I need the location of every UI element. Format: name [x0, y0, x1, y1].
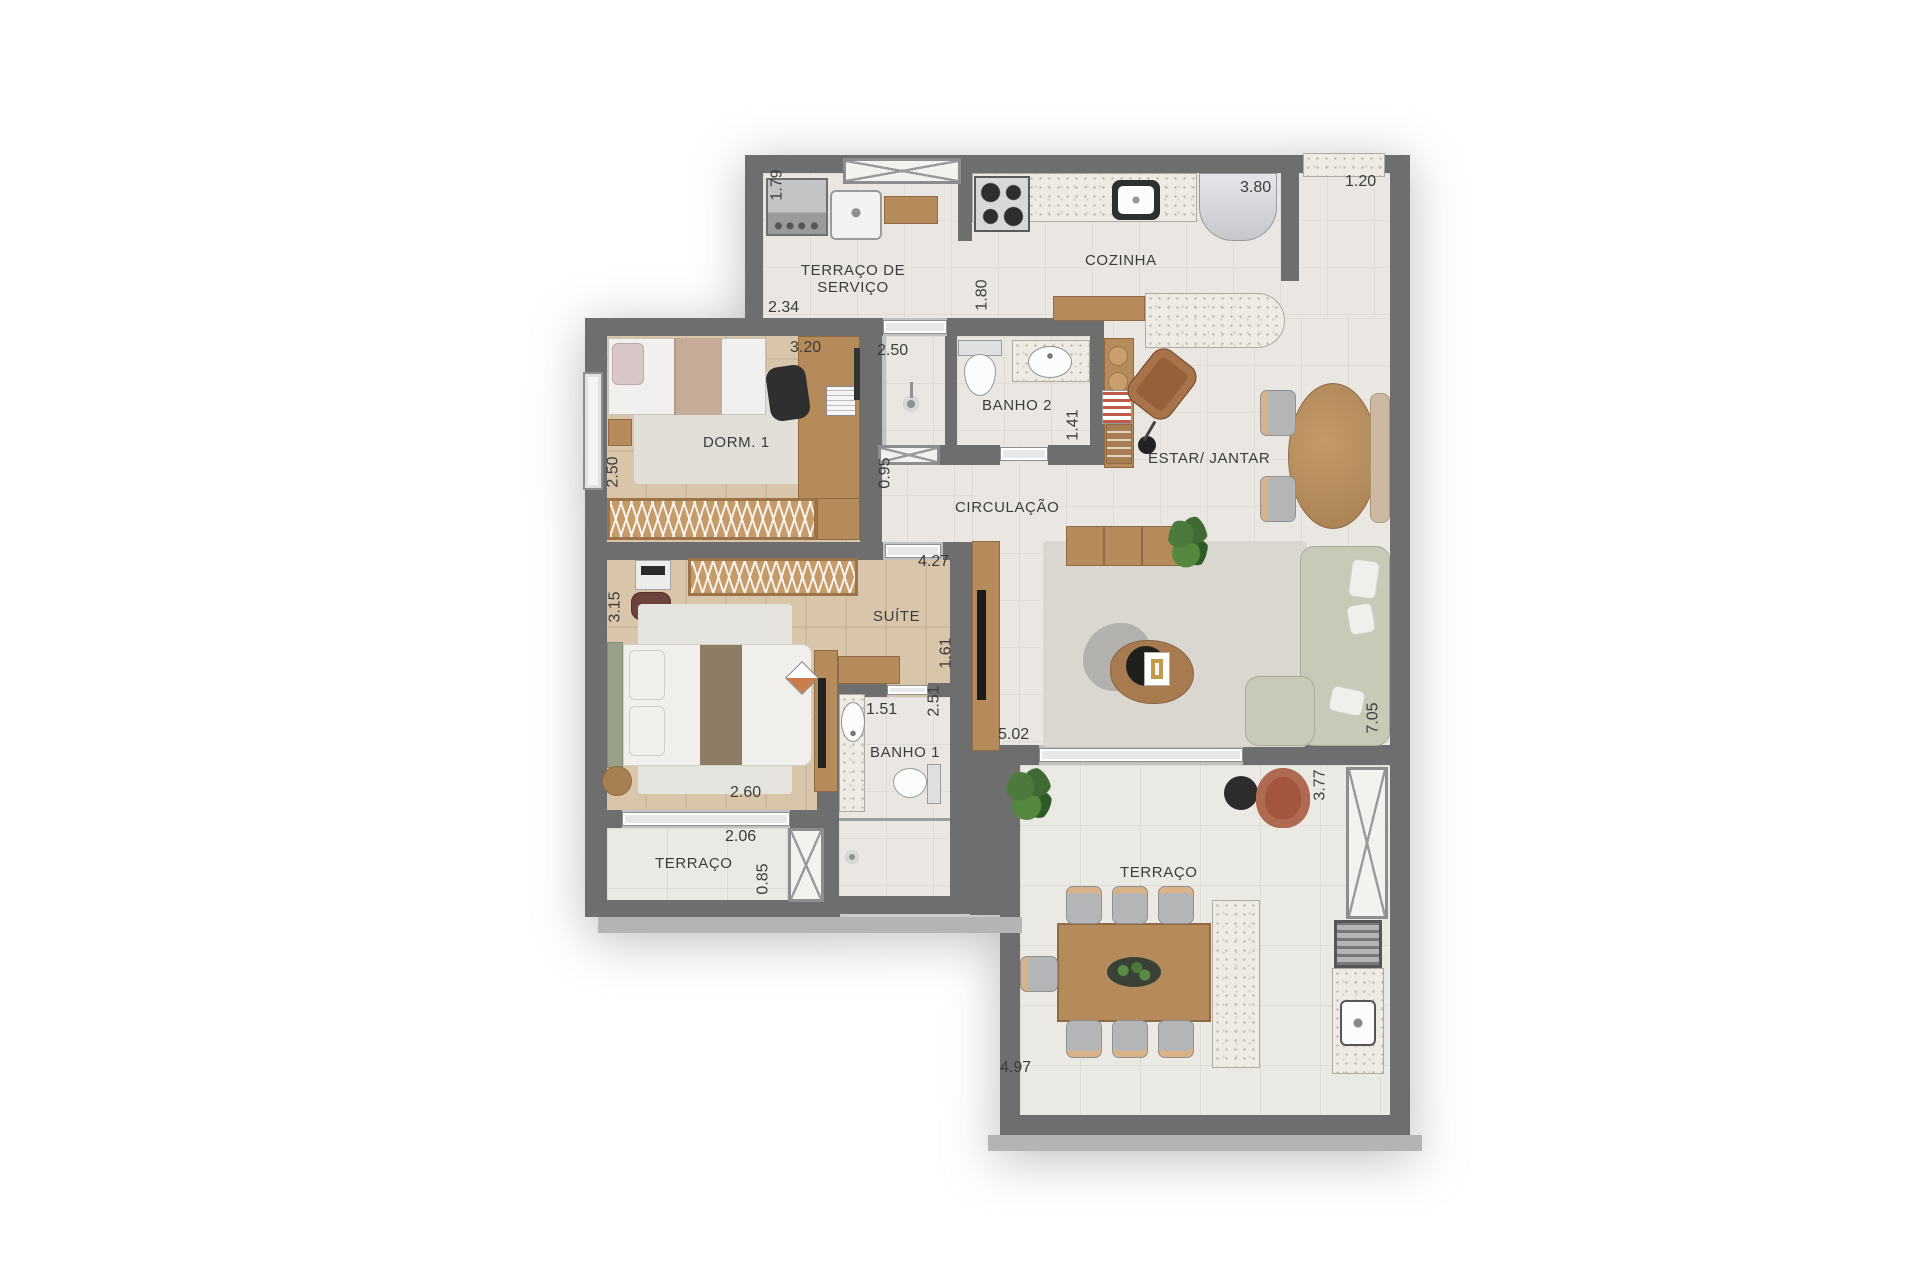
bed-runner	[700, 645, 742, 765]
cooktop-icon	[974, 176, 1030, 232]
headboard	[607, 642, 623, 768]
desk-chair-icon	[764, 363, 811, 422]
terrace-counter	[1212, 900, 1260, 1068]
dim-1-61: 1.61	[938, 637, 956, 668]
wall	[1281, 155, 1299, 281]
dining-chair-icon	[1158, 1020, 1194, 1058]
dining-chair-icon	[1066, 886, 1102, 924]
stool-icon	[1108, 372, 1128, 392]
pillow	[1347, 558, 1380, 600]
kitchen-island-wood	[1053, 296, 1145, 321]
door-sill	[1000, 447, 1048, 461]
dining-chair-icon	[1066, 1020, 1102, 1058]
room-label-circulacao: CIRCULAÇÃO	[955, 499, 1059, 516]
sideboard	[1066, 526, 1180, 566]
door-sill	[887, 685, 928, 695]
side-table	[602, 766, 632, 796]
kitchen-island	[1145, 293, 1285, 348]
tv-icon	[977, 590, 986, 700]
duct-shaft	[788, 828, 824, 902]
dim-0-95: 0.95	[877, 457, 895, 488]
sink-icon	[1028, 346, 1072, 378]
wall	[745, 155, 1303, 173]
door-sill	[883, 320, 947, 334]
plant-icon	[1006, 766, 1052, 824]
closet-rack	[688, 558, 858, 596]
dining-chair-icon	[1020, 956, 1058, 992]
monitor-icon	[854, 348, 860, 400]
pillow	[629, 706, 665, 756]
wall	[860, 336, 882, 542]
dim-3-20: 3.20	[790, 339, 821, 357]
room-label-terraco-servico: TERRAÇO DE SERVIÇO	[797, 262, 909, 296]
side-table-icon	[1224, 776, 1258, 810]
dim-1-51: 1.51	[866, 701, 897, 719]
dining-bench	[1370, 393, 1390, 523]
service-window-louver	[843, 158, 961, 184]
dim-1-41: 1.41	[1065, 409, 1083, 440]
dim-2-50-dorm: 2.50	[605, 456, 623, 487]
wall	[585, 810, 622, 828]
terrace-door-sill	[622, 812, 790, 826]
wall	[1390, 765, 1410, 1135]
wall	[585, 318, 883, 336]
dining-chair-icon	[1158, 886, 1194, 924]
pillow	[629, 650, 665, 700]
shower-glass	[839, 818, 950, 821]
window	[583, 372, 603, 490]
dim-1-80: 1.80	[974, 279, 992, 310]
room-label-cozinha: COZINHA	[1085, 252, 1157, 269]
service-counter	[884, 196, 938, 224]
wall	[585, 900, 840, 917]
wall	[860, 445, 878, 465]
dim-2-34: 2.34	[768, 299, 799, 317]
book	[1144, 652, 1170, 686]
wall	[1048, 445, 1104, 465]
wall	[817, 896, 972, 914]
dining-chair-icon	[1112, 1020, 1148, 1058]
blanket	[674, 338, 722, 415]
dim-2-60: 2.60	[730, 784, 761, 802]
dim-1-20: 1.20	[1345, 173, 1376, 191]
duct-shaft	[1346, 767, 1388, 919]
dim-2-51: 2.51	[926, 685, 944, 716]
dresser	[635, 560, 671, 590]
tv-icon	[818, 678, 826, 768]
tv-icon	[641, 566, 665, 575]
wall	[1390, 155, 1410, 767]
floor-plan: TERRAÇO DE SERVIÇO COZINHA DORM. 1 BANHO…	[0, 0, 1920, 1280]
shower-head-icon	[903, 396, 919, 412]
dim-7-05: 7.05	[1365, 702, 1383, 733]
sliding-door-sill	[1039, 748, 1243, 762]
room-label-suite: SUÍTE	[873, 608, 920, 625]
balcony-slab-edge	[988, 1135, 1422, 1151]
grill-icon	[1334, 920, 1382, 968]
nightstand	[608, 419, 632, 446]
room-label-terraco-esq: TERRAÇO	[655, 855, 733, 872]
dining-chair-icon	[1260, 390, 1296, 436]
dining-table-icon	[1288, 383, 1378, 529]
dining-chair-icon	[1112, 886, 1148, 924]
laundry-sink-icon	[830, 190, 882, 240]
wall	[945, 336, 957, 445]
dim-5-02: 5.02	[998, 726, 1029, 744]
stool-icon	[1108, 346, 1128, 366]
laptop-icon	[826, 386, 856, 416]
dim-3-15: 3.15	[607, 591, 625, 622]
sofa-chaise	[1245, 676, 1315, 746]
room-label-dorm1: DORM. 1	[703, 434, 770, 451]
dim-1-79: 1.79	[769, 169, 787, 200]
wall	[950, 542, 972, 914]
cart	[1106, 424, 1132, 464]
pillow	[612, 343, 644, 385]
room-label-banho1: BANHO 1	[870, 744, 940, 761]
balcony-slab-edge	[598, 917, 1022, 933]
dining-chair-icon	[1260, 476, 1296, 522]
toilet-tank	[927, 764, 941, 804]
dim-0-85: 0.85	[755, 863, 773, 894]
desk	[798, 336, 860, 502]
wall	[1000, 1115, 1410, 1135]
room-label-terraco-fundo: TERRAÇO	[1120, 864, 1198, 881]
dim-3-77: 3.77	[1312, 769, 1330, 800]
dim-4-27: 4.27	[918, 553, 949, 571]
wall	[1000, 765, 1020, 1135]
shower-arm	[910, 382, 913, 398]
pillow	[1346, 602, 1377, 636]
closet-shelf	[817, 498, 860, 540]
room-label-banho2: BANHO 2	[982, 397, 1052, 414]
sink-icon	[841, 702, 865, 742]
dim-4-97: 4.97	[1000, 1059, 1031, 1077]
kitchen-sink-basin	[1118, 186, 1154, 214]
terrace-sink-icon	[1340, 1000, 1376, 1046]
plant-icon	[1168, 514, 1208, 572]
armchair-icon	[1256, 768, 1310, 828]
dim-2-06: 2.06	[725, 828, 756, 846]
centerpiece-plant-icon	[1104, 954, 1164, 990]
shower-head-icon	[845, 850, 859, 864]
wall	[1243, 745, 1410, 765]
dim-2-50-banho: 2.50	[877, 342, 908, 360]
wall	[940, 445, 1000, 465]
room-label-estar-jantar: ESTAR/ JANTAR	[1148, 450, 1270, 467]
vanity-ledge	[838, 656, 900, 684]
dim-3-80: 3.80	[1240, 179, 1271, 197]
wall	[790, 810, 838, 828]
wall	[745, 155, 763, 335]
closet-rack	[607, 498, 817, 540]
